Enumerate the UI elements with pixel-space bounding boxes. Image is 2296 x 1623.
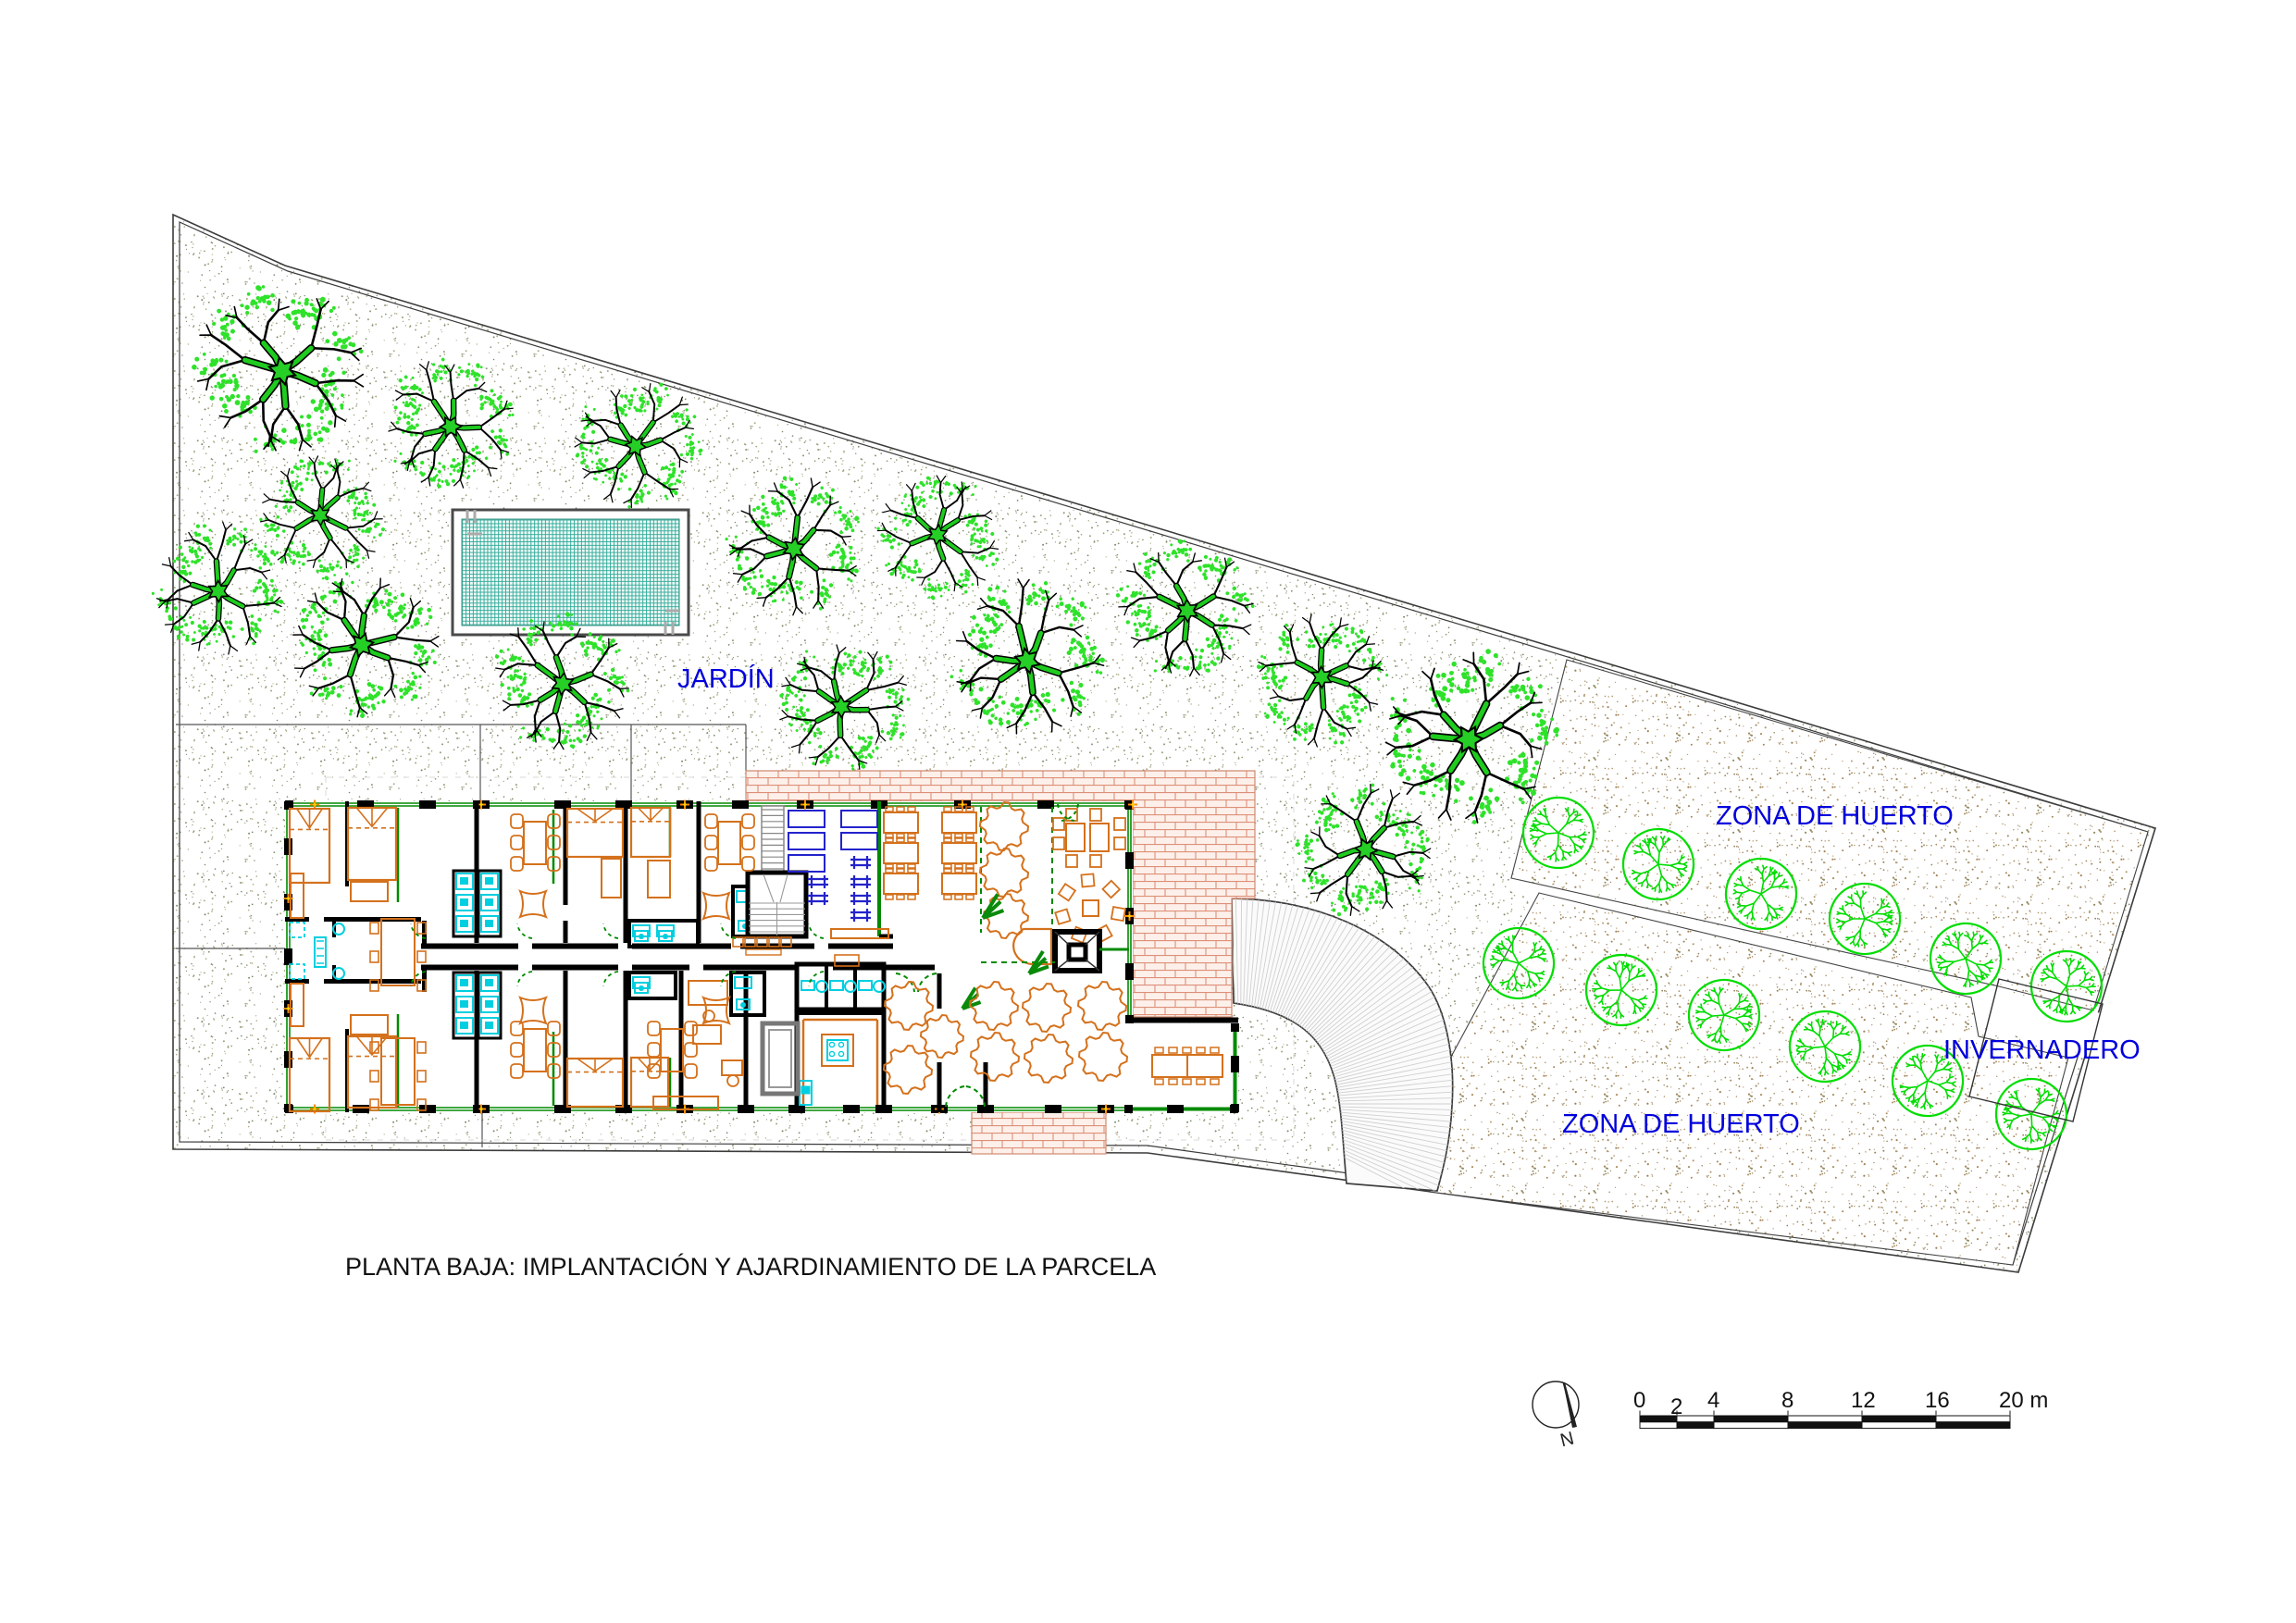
svg-text:0: 0	[1633, 1388, 1645, 1413]
svg-text:12: 12	[1851, 1388, 1876, 1413]
svg-text:2: 2	[1670, 1394, 1682, 1419]
svg-text:ZONA DE HUERTO: ZONA DE HUERTO	[1562, 1109, 1800, 1139]
svg-text:20 m: 20 m	[1999, 1388, 2048, 1413]
svg-text:16: 16	[1925, 1388, 1950, 1413]
svg-text:PLANTA BAJA: IMPLANTACIÓN Y AJ: PLANTA BAJA: IMPLANTACIÓN Y AJARDINAMIEN…	[345, 1252, 1156, 1281]
svg-text:JARDÍN: JARDÍN	[677, 663, 775, 694]
svg-text:ZONA DE HUERTO: ZONA DE HUERTO	[1716, 801, 1954, 831]
svg-text:4: 4	[1707, 1388, 1719, 1413]
svg-text:INVERNADERO: INVERNADERO	[1943, 1035, 2141, 1065]
svg-text:8: 8	[1781, 1388, 1793, 1413]
svg-text:N: N	[1558, 1428, 1576, 1451]
